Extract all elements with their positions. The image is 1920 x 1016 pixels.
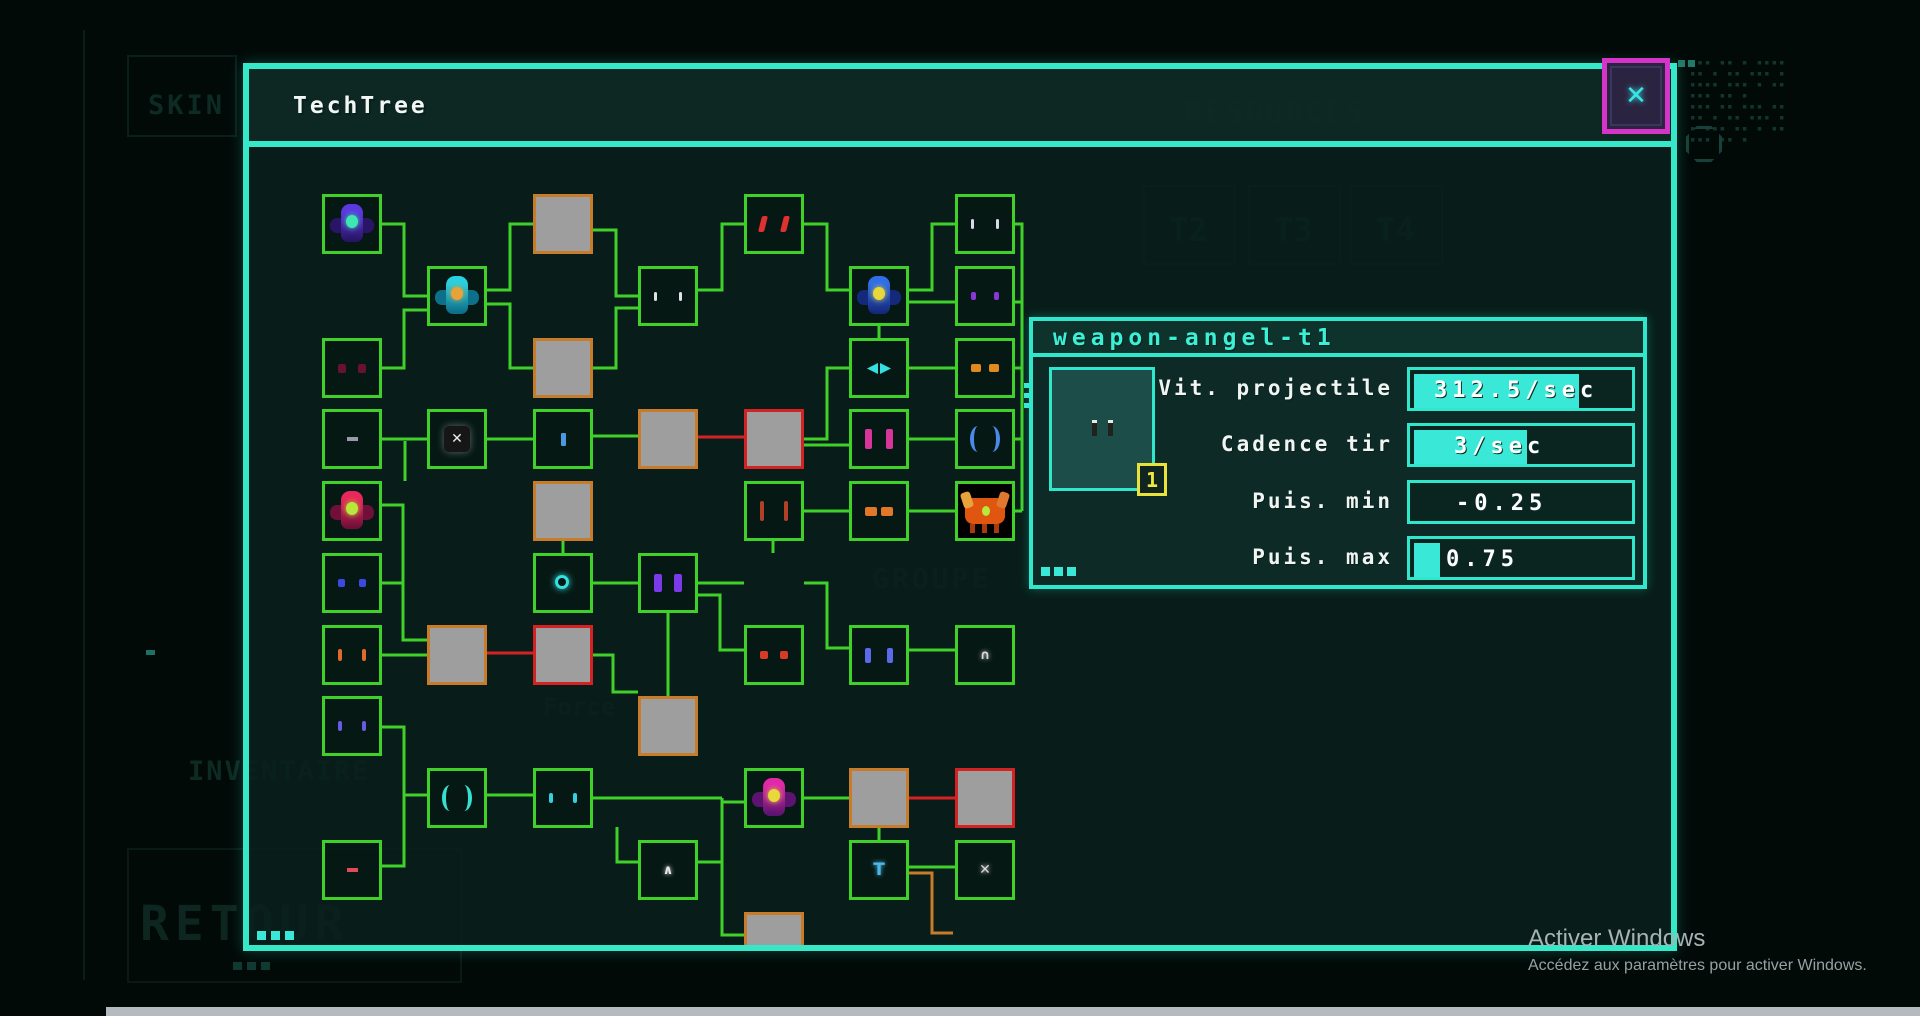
tech-node-c4r4[interactable]: [638, 409, 698, 469]
tech-node-c7r9[interactable]: [955, 768, 1015, 828]
sprite-part: [358, 364, 366, 373]
tech-node-c4r2[interactable]: [638, 266, 698, 326]
dash-sprite: [325, 843, 379, 897]
tech-node-c6r4[interactable]: [849, 409, 909, 469]
tech-node-c1r8[interactable]: [322, 696, 382, 756]
tree-link: [382, 505, 427, 640]
tech-node-c4r8[interactable]: [638, 696, 698, 756]
bg-sub-dots: [233, 962, 273, 970]
tooltip-edge-tick: [1024, 383, 1029, 388]
tree-link: [909, 873, 953, 933]
sprite-part: [561, 433, 566, 446]
bg-vertical-line: [83, 30, 85, 980]
tech-node-c6r3[interactable]: [849, 338, 909, 398]
glyph-icon: ∩: [958, 628, 1012, 682]
tech-node-c5r7[interactable]: [744, 625, 804, 685]
stat-value-box-1: 312.5/sec: [1407, 367, 1635, 411]
dash-sprite: [325, 412, 379, 466]
sprite-part: [760, 651, 768, 659]
sprite-part: [362, 721, 366, 731]
tooltip-corner-dot: [1067, 567, 1076, 576]
tech-node-c7r4[interactable]: [955, 409, 1015, 469]
claws-sprite: [430, 771, 484, 825]
sprite-part: [865, 507, 877, 516]
node-tooltip-panel: weapon-angel-t1 1 Vit. projectile312.5/s…: [1029, 317, 1647, 589]
bg-sub-dot: [247, 962, 256, 970]
sprite-part: [549, 793, 553, 803]
sprite-part: [456, 785, 472, 811]
hud-square-icon: [1678, 60, 1685, 67]
glyph-sprite: T: [852, 843, 906, 897]
tree-link: [593, 655, 638, 692]
sprite-part: [971, 292, 976, 300]
tech-node-c2r7[interactable]: [427, 625, 487, 685]
tree-link: [487, 224, 533, 290]
tech-node-c3r5[interactable]: [533, 481, 593, 541]
pair-sprite: [958, 341, 1012, 395]
pair-sprite: [325, 341, 379, 395]
sprite-part: [451, 287, 463, 300]
sprite-part: [780, 651, 788, 659]
sprite-part: [865, 429, 872, 449]
ship-sprite: [325, 197, 379, 251]
stat-label-3: Puis. min: [1063, 489, 1393, 513]
sprite-part: [780, 216, 790, 232]
tree-link: [593, 230, 638, 296]
tech-node-c1r10[interactable]: [322, 840, 382, 900]
tech-node-c6r2[interactable]: [849, 266, 909, 326]
ship-sprite: [852, 269, 906, 323]
sprite-part: [338, 364, 346, 373]
sprite-part: [970, 524, 975, 533]
sprite-part: [887, 648, 893, 663]
bg-sub-dot: [261, 962, 270, 970]
windows-activation-subtitle: Accédez aux paramètres pour activer Wind…: [1528, 957, 1867, 975]
sprite-part: [971, 364, 981, 372]
x-icon: ✕: [444, 426, 470, 452]
tech-node-c3r4[interactable]: [533, 409, 593, 469]
sprite-part: [654, 292, 657, 301]
sprite-part: [865, 648, 871, 663]
hud-matrix-row: ▪▪▪▪ ▪▪▪ ▪ ▪▪: [1690, 80, 1786, 91]
tree-link: [804, 224, 849, 290]
sprite-part: [338, 649, 342, 661]
pair-sprite: [536, 771, 590, 825]
tree-link: [382, 727, 427, 795]
sprite-part: [996, 219, 999, 229]
sprite-part: [873, 287, 885, 300]
sprite-part: [982, 524, 987, 533]
sprite-part: [886, 429, 893, 449]
sprite-part: [881, 507, 893, 516]
tech-node-c3r1[interactable]: [533, 194, 593, 254]
sprite-part: [359, 579, 366, 587]
tech-node-c5r9[interactable]: [744, 768, 804, 828]
tree-link: [382, 224, 427, 296]
pair-sprite: [958, 197, 1012, 251]
ship-sprite: [747, 771, 801, 825]
tech-node-c5r4[interactable]: [744, 409, 804, 469]
stat-value-box-4: 0.75: [1407, 536, 1635, 580]
tooltip-corner-dot: [1054, 567, 1063, 576]
sprite-part: [784, 501, 788, 521]
sprite-part: [654, 574, 662, 592]
tree-link: [487, 304, 533, 368]
sprite-part: [573, 793, 577, 803]
tooltip-corner-dot: [1041, 567, 1050, 576]
sprite-part: [346, 215, 358, 228]
hud-matrix-row: ▪▪ ▪ ▪▪ ▪▪▪ ▪: [1690, 113, 1786, 124]
tech-node-c3r3[interactable]: [533, 338, 593, 398]
tech-node-c6r7[interactable]: [849, 625, 909, 685]
sprite-part: [971, 219, 974, 229]
tooltip-header: weapon-angel-t1: [1033, 321, 1643, 357]
ship-sprite: [430, 269, 484, 323]
sprite-part: [994, 524, 999, 533]
sprite-part: [347, 868, 358, 872]
glyph-icon: ∧: [641, 843, 695, 897]
tech-node-c1r1[interactable]: [322, 194, 382, 254]
sprite-part: [994, 292, 999, 300]
tech-node-c2r9[interactable]: [427, 768, 487, 828]
tech-node-c7r5[interactable]: [955, 481, 1015, 541]
tech-node-c4r6[interactable]: [638, 553, 698, 613]
stat-value-1: 312.5/sec: [1434, 378, 1598, 403]
tech-node-c4r10[interactable]: ∧: [638, 840, 698, 900]
ring-sprite: [536, 556, 590, 610]
glyph-sprite: ✕: [958, 843, 1012, 897]
stat-label-2: Cadence tir: [1063, 432, 1393, 456]
sprite-part: [867, 363, 878, 374]
tech-node-c5r5[interactable]: [744, 481, 804, 541]
hud-matrix-row: ▪▪▪ ▪▪ ▪ ▪▪▪▪: [1690, 58, 1786, 69]
ship-sprite: [325, 484, 379, 538]
tech-node-c1r5[interactable]: [322, 481, 382, 541]
sprite-part: [679, 292, 682, 301]
tooltip-edge-tick: [1024, 393, 1029, 398]
tech-node-c6r5[interactable]: [849, 481, 909, 541]
hud-matrix-row: ▪▪ ▪ ▪▪ ▪▪▪ ▪: [1690, 69, 1786, 80]
tech-node-c3r7[interactable]: [533, 625, 593, 685]
tree-link: [698, 595, 744, 650]
stat-fill-bar: [1414, 543, 1440, 577]
glyph-icon: T: [852, 843, 906, 897]
pair-sprite: [747, 197, 801, 251]
bg-skin-label: SKIN: [148, 90, 225, 121]
stat-value-3: -0.25: [1456, 491, 1547, 516]
hud-square-icon: [1688, 60, 1695, 67]
sprite-part: [347, 437, 358, 441]
pair-sprite: [852, 628, 906, 682]
hud-matrix-row: ▪▪▪ ▪▪ ▪: [1690, 91, 1749, 102]
sprite-part: [984, 426, 1000, 452]
tooltip-title: weapon-angel-t1: [1053, 325, 1336, 351]
tree-link: [617, 827, 638, 862]
tree-link: [909, 224, 955, 290]
sprite-part: [758, 216, 768, 232]
techtree-titlebar: TechTree: [249, 69, 1671, 147]
pair-sprite: [325, 628, 379, 682]
sprite-part: ✕: [444, 426, 470, 452]
sprite-part: [338, 721, 342, 731]
pair-sprite: [641, 269, 695, 323]
tech-node-c1r4[interactable]: [322, 409, 382, 469]
xbox-sprite: ✕: [430, 412, 484, 466]
tech-node-c7r10[interactable]: ✕: [955, 840, 1015, 900]
glyph-icon: ✕: [958, 843, 1012, 897]
stat-value-4: 0.75: [1446, 547, 1519, 572]
hud-matrix-row: ▪▪▪ ▪▪ ▪▪▪ ▪▪: [1690, 102, 1786, 113]
sprite-part: [880, 363, 891, 374]
tech-node-c1r6[interactable]: [322, 553, 382, 613]
tech-node-c6r9[interactable]: [849, 768, 909, 828]
stat-label-1: Vit. projectile: [1063, 376, 1393, 400]
tri-sprite: [852, 341, 906, 395]
window-title: TechTree: [293, 93, 428, 119]
glyph-sprite: ∧: [641, 843, 695, 897]
tech-node-c6r10[interactable]: T: [849, 840, 909, 900]
close-button-inner-frame: [1610, 66, 1662, 126]
tree-link: [382, 795, 404, 866]
windows-activation-title: Activer Windows: [1528, 925, 1705, 953]
sprite-part: [960, 491, 974, 509]
sprite-part: [346, 502, 358, 515]
tech-node-c7r7[interactable]: ∩: [955, 625, 1015, 685]
glyph-sprite: ∩: [958, 628, 1012, 682]
tree-link: [804, 583, 849, 648]
sprite-part: [760, 501, 764, 521]
tech-node-c3r9[interactable]: [533, 768, 593, 828]
sprite-part: [996, 491, 1010, 509]
pair-sprite: [852, 412, 906, 466]
sprite-part: [989, 364, 999, 372]
pair-sprite: [325, 699, 379, 753]
bg-cyan-dash: [146, 650, 155, 655]
hud-octagon-icon: [1686, 126, 1722, 162]
sprite-part: [338, 579, 345, 587]
sprite-part: [555, 575, 569, 589]
bg-sub-dot: [233, 962, 242, 970]
pair-sprite: [325, 556, 379, 610]
tooltip-edge-tick: [1024, 403, 1029, 408]
stat-value-2: 3/sec: [1454, 434, 1545, 459]
tech-node-c2r4[interactable]: ✕: [427, 409, 487, 469]
crab-sprite: [958, 484, 1012, 538]
pair-sprite: [958, 269, 1012, 323]
tech-node-c7r2[interactable]: [955, 266, 1015, 326]
tree-link: [722, 798, 744, 935]
tree-link: [593, 308, 638, 368]
tech-node-c7r3[interactable]: [955, 338, 1015, 398]
tech-node-c5r1[interactable]: [744, 194, 804, 254]
tech-node-c7r1[interactable]: [955, 194, 1015, 254]
tech-node-c1r7[interactable]: [322, 625, 382, 685]
sprite-part: [982, 506, 990, 516]
sprite-part: [674, 574, 682, 592]
claws-sprite: [958, 412, 1012, 466]
tech-node-c3r6[interactable]: [533, 553, 593, 613]
tiny-sprite: [536, 412, 590, 466]
tech-node-c2r2[interactable]: [427, 266, 487, 326]
sprite-part: [768, 789, 780, 802]
bottom-bar: [106, 1007, 1920, 1016]
pair-sprite: [641, 556, 695, 610]
tree-link: [698, 224, 744, 290]
pair-sprite: [852, 484, 906, 538]
stat-value-box-3: -0.25: [1407, 480, 1635, 524]
tech-node-c5r11[interactable]: [744, 912, 804, 945]
tech-node-c1r3[interactable]: [322, 338, 382, 398]
sprite-part: [362, 649, 366, 661]
pair-sprite: [747, 484, 801, 538]
tree-link: [803, 368, 849, 439]
close-button[interactable]: ✕: [1602, 58, 1670, 134]
stat-label-4: Puis. max: [1063, 545, 1393, 569]
pair-sprite: [747, 628, 801, 682]
stat-value-box-2: 3/sec: [1407, 423, 1635, 467]
tree-link: [382, 310, 427, 368]
